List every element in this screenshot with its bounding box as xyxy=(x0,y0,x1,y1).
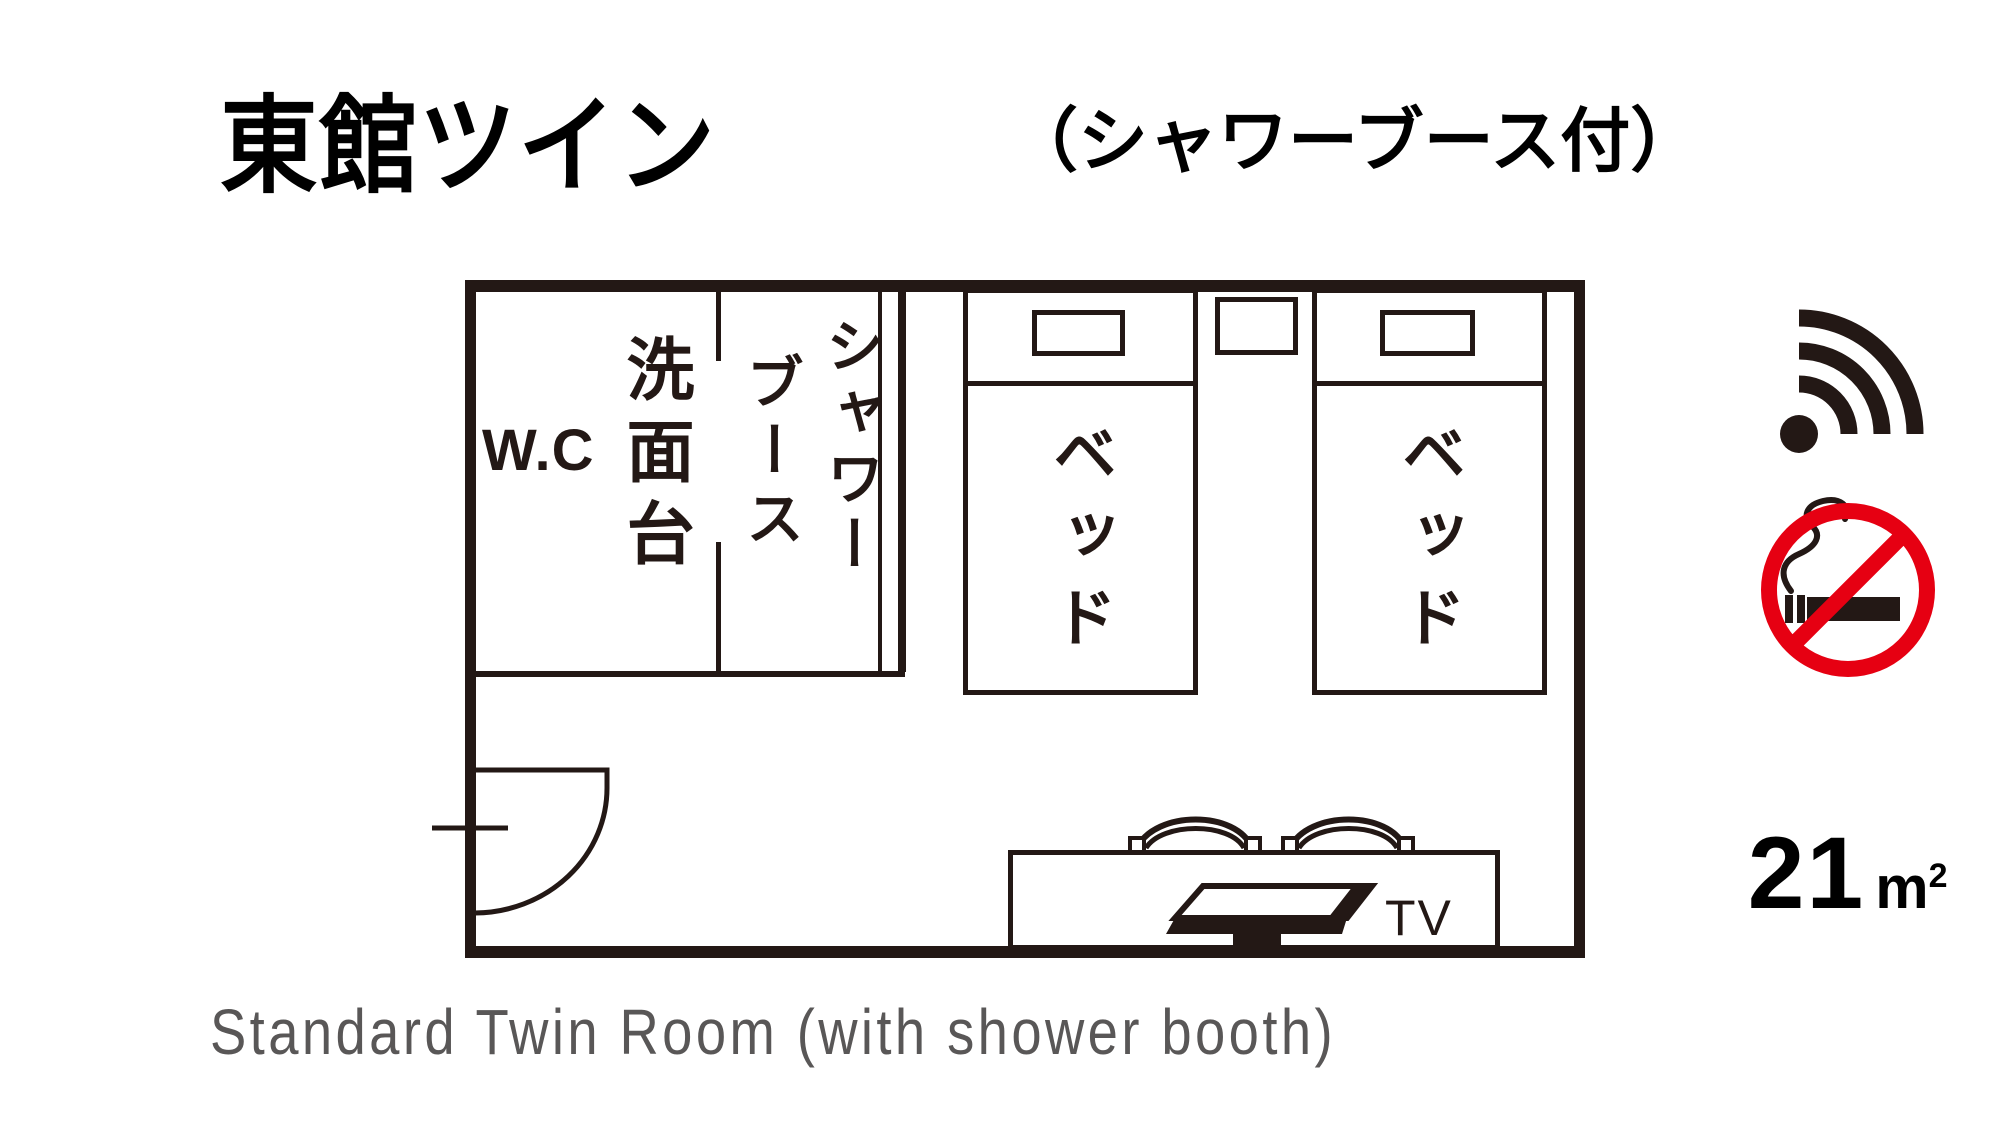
chair-icon xyxy=(1283,820,1413,853)
washstand-label: 洗面台 xyxy=(620,334,688,580)
chair-icon xyxy=(1130,820,1260,853)
shower-booth-label-line1: シャワー xyxy=(820,316,878,580)
no-smoking-icon xyxy=(1769,500,1927,669)
room-area-unit-exponent: 2 xyxy=(1929,857,1948,895)
wc-label: W.C xyxy=(482,422,595,480)
wifi-icon xyxy=(1780,318,1915,453)
tv-icon xyxy=(1166,886,1372,950)
english-caption: Standard Twin Room (with shower booth) xyxy=(210,1000,1336,1064)
shower-booth-label-line2: ブース xyxy=(740,352,798,556)
room-area-value: 21 xyxy=(1748,816,1865,930)
room-area-unit: m2 xyxy=(1875,854,1947,921)
room-area: 21m2 xyxy=(1730,806,1948,940)
door-swing-icon xyxy=(432,770,607,913)
floorplan-graphics xyxy=(0,0,2000,1125)
floorplan-page: 東館ツイン （シャワーブース付） xyxy=(0,0,2000,1125)
bed-right-label: ベッド xyxy=(1397,420,1461,666)
bed-left-label: ベッド xyxy=(1048,420,1112,666)
tv-label: TV xyxy=(1385,893,1453,943)
